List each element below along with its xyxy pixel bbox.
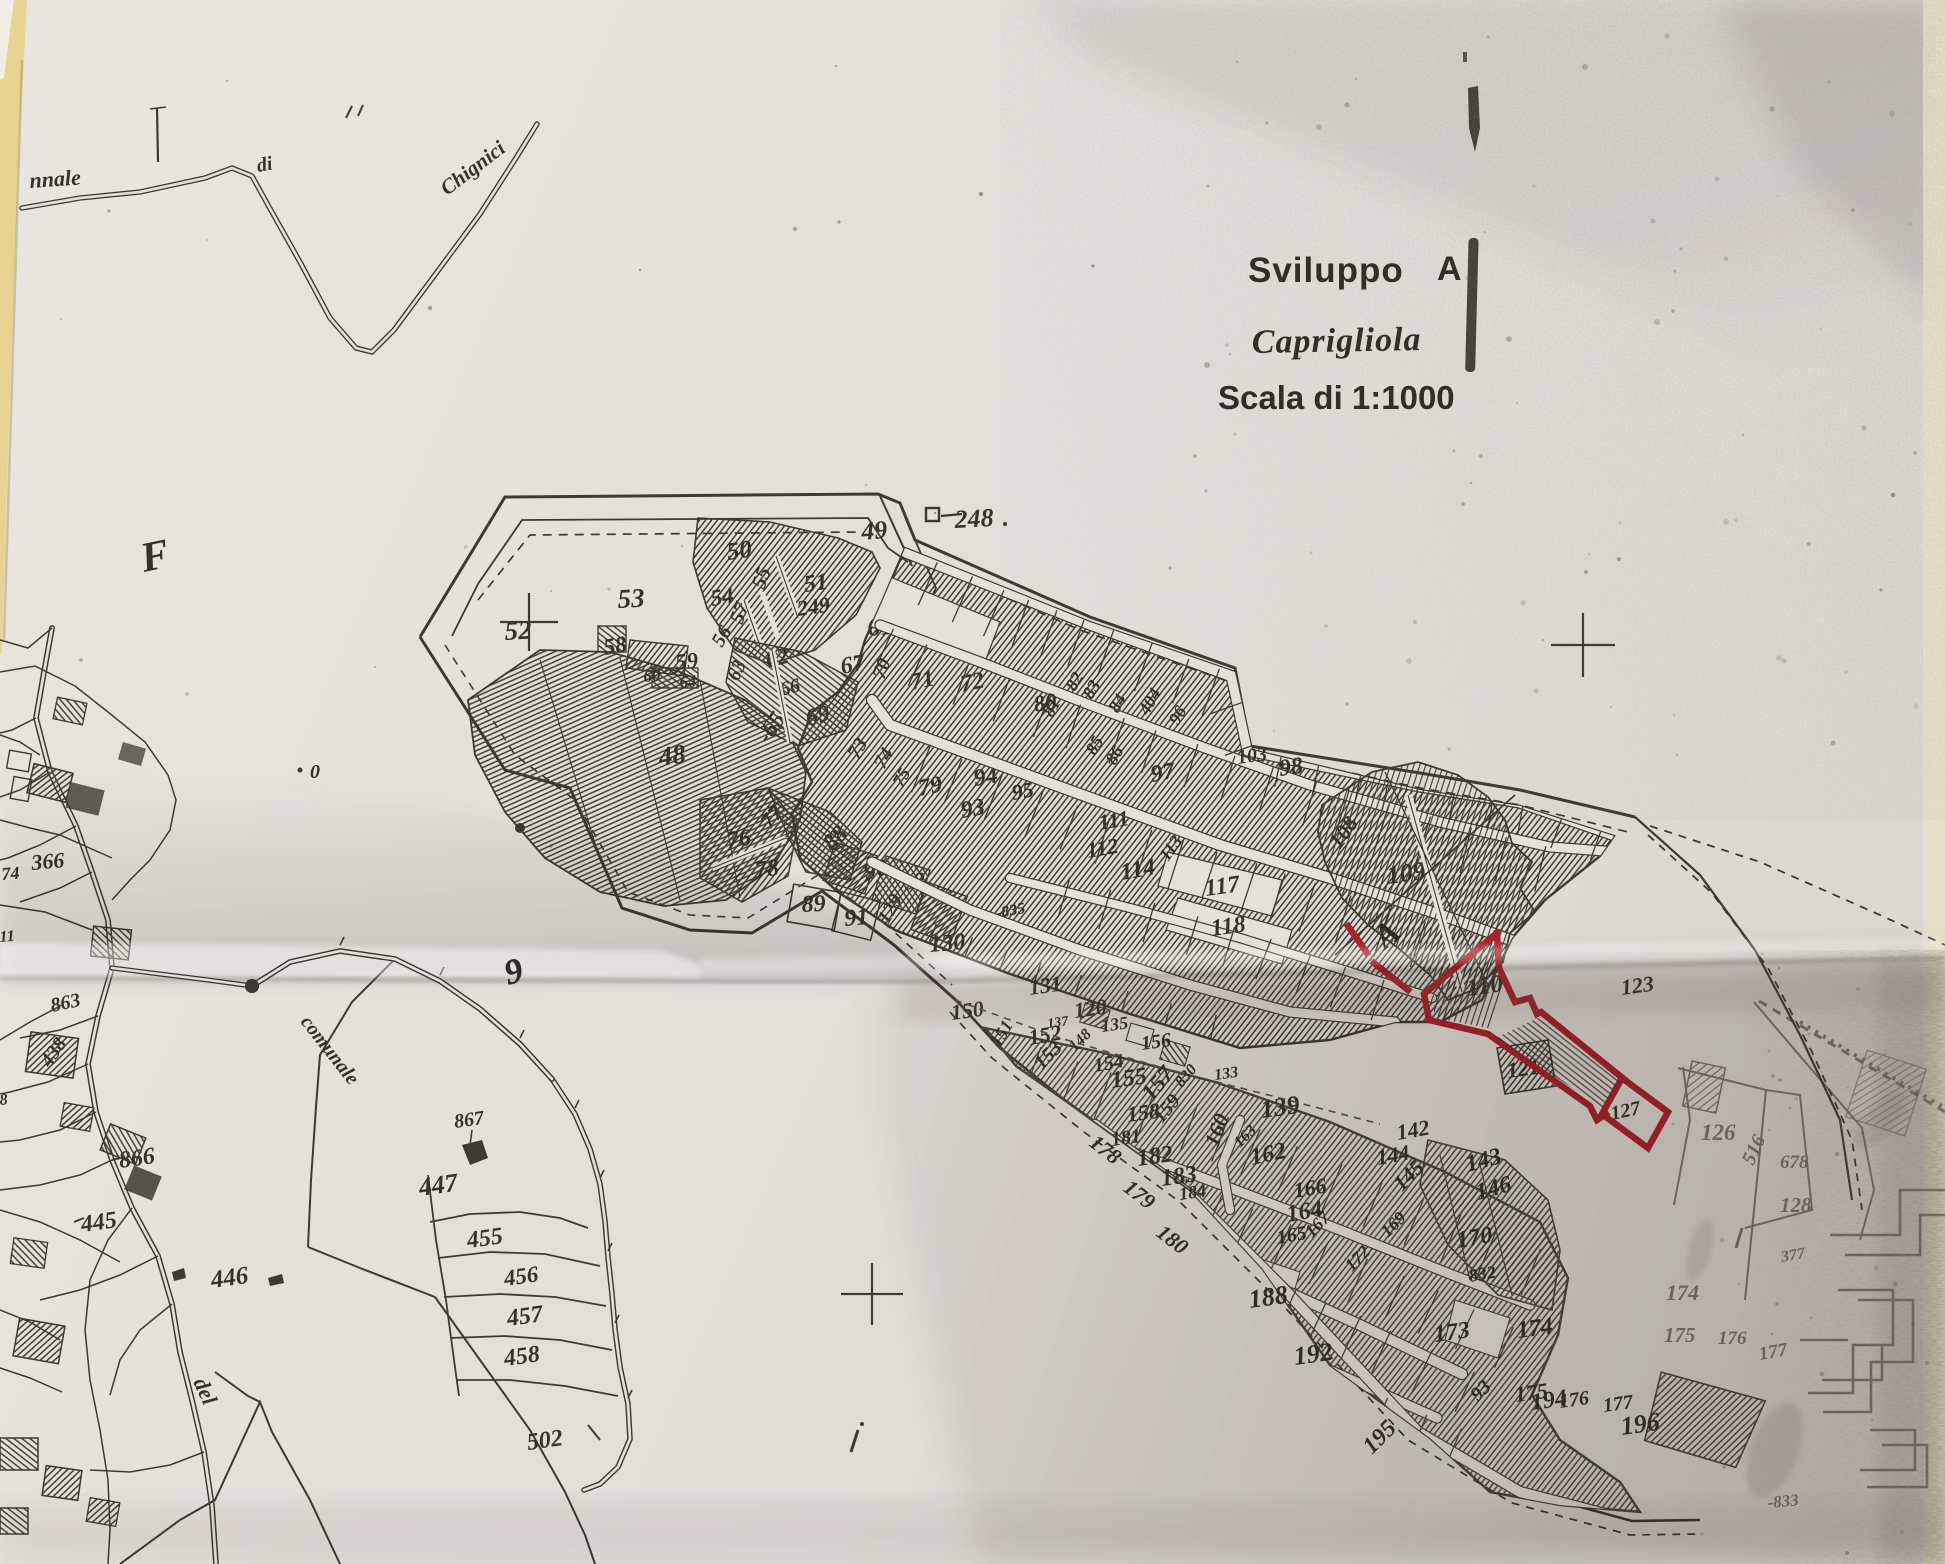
svg-text:446: 446 bbox=[208, 1262, 250, 1294]
svg-text:52: 52 bbox=[504, 615, 533, 646]
svg-text:58: 58 bbox=[602, 631, 629, 660]
svg-text:249: 249 bbox=[794, 592, 831, 621]
svg-text:456: 456 bbox=[501, 1261, 540, 1291]
svg-text:59: 59 bbox=[674, 648, 700, 675]
svg-text:nnale: nnale bbox=[29, 164, 82, 193]
svg-text:248: 248 bbox=[953, 503, 994, 534]
svg-text:50: 50 bbox=[725, 536, 754, 566]
svg-text:455: 455 bbox=[464, 1223, 504, 1254]
svg-text:64: 64 bbox=[678, 671, 697, 692]
svg-text:53: 53 bbox=[617, 583, 646, 614]
svg-text:502: 502 bbox=[525, 1425, 564, 1456]
svg-text:49: 49 bbox=[859, 515, 888, 546]
svg-text:118: 118 bbox=[1209, 911, 1247, 942]
svg-text:457: 457 bbox=[504, 1301, 545, 1332]
svg-text:117: 117 bbox=[1203, 871, 1242, 902]
svg-text:60: 60 bbox=[642, 665, 661, 686]
svg-text:447: 447 bbox=[416, 1168, 461, 1202]
svg-text:48: 48 bbox=[656, 738, 688, 772]
svg-text:0: 0 bbox=[310, 761, 320, 783]
svg-text:76: 76 bbox=[725, 825, 752, 854]
svg-text:458: 458 bbox=[501, 1341, 541, 1372]
svg-text:867: 867 bbox=[453, 1107, 487, 1133]
